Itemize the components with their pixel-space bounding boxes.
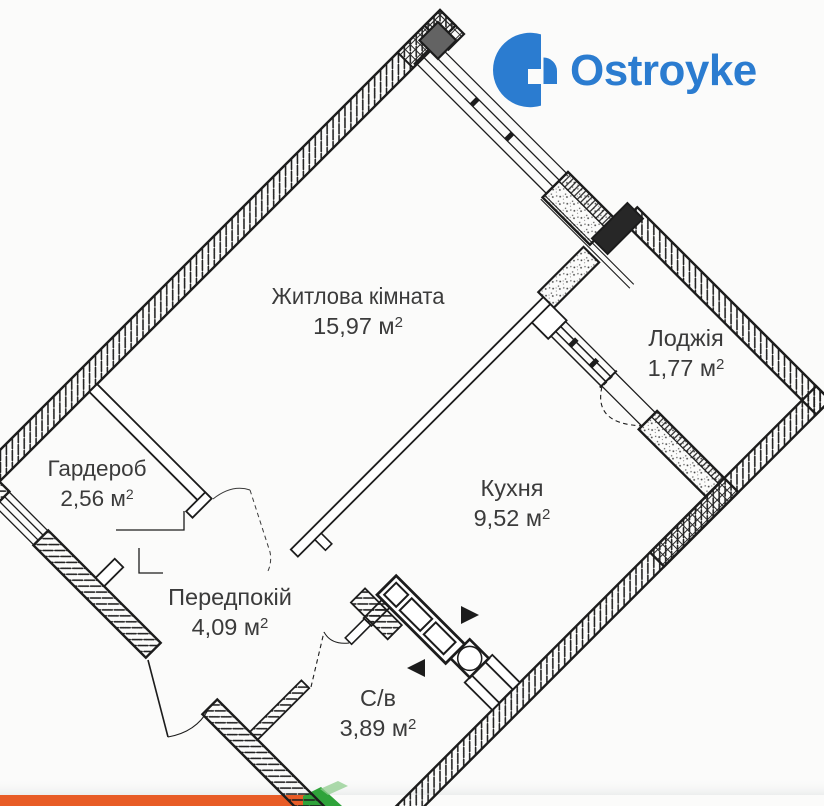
svg-text:Житлова кімната: Житлова кімната	[272, 283, 446, 309]
svg-text:3,89 м2: 3,89 м2	[340, 715, 417, 741]
svg-text:Передпокій: Передпокій	[168, 584, 292, 610]
svg-text:Гардероб: Гардероб	[48, 456, 147, 481]
svg-text:2,56 м2: 2,56 м2	[60, 486, 134, 511]
svg-text:9,52 м2: 9,52 м2	[474, 505, 551, 531]
svg-text:4,09 м2: 4,09 м2	[192, 614, 269, 640]
svg-text:1,77 м2: 1,77 м2	[648, 355, 725, 381]
svg-text:Лоджія: Лоджія	[648, 325, 723, 351]
svg-text:Ostroyke: Ostroyke	[570, 46, 757, 95]
svg-text:Кухня: Кухня	[481, 475, 544, 501]
svg-text:С/в: С/в	[360, 685, 396, 711]
svg-text:15,97 м2: 15,97 м2	[313, 313, 403, 339]
